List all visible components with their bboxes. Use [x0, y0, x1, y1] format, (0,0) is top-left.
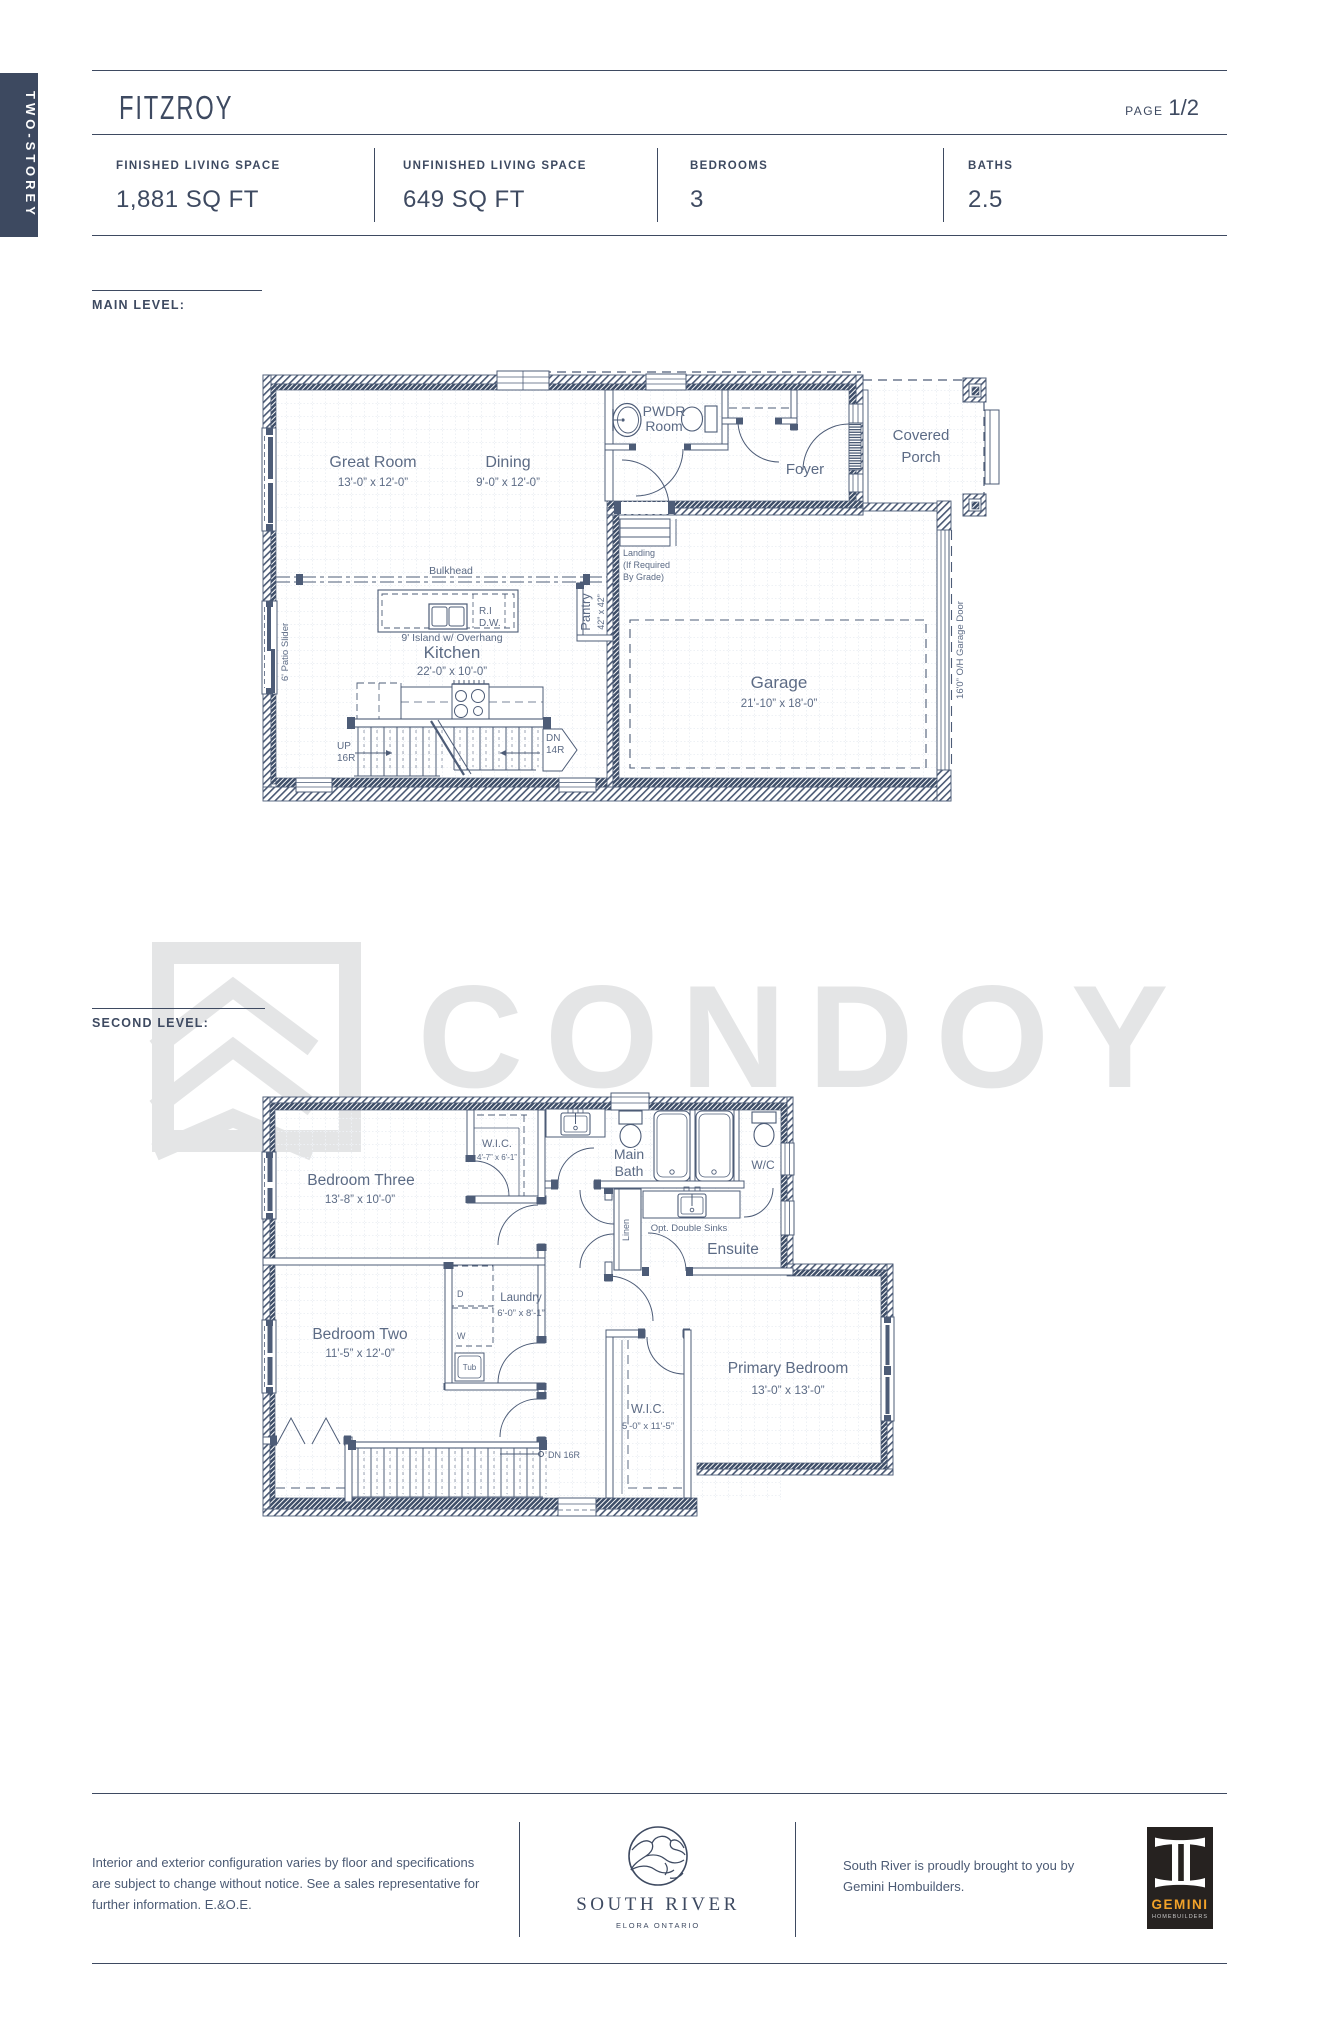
svg-text:14R: 14R: [546, 745, 564, 756]
svg-text:4'-7” x 6'-1”: 4'-7” x 6'-1”: [477, 1153, 517, 1162]
svg-text:9'-0” x 12'-0”: 9'-0” x 12'-0”: [476, 477, 540, 489]
svg-text:Laundry: Laundry: [500, 1292, 542, 1304]
svg-text:13'-0” x 12'-0”: 13'-0” x 12'-0”: [338, 477, 408, 489]
svg-text:Room: Room: [645, 418, 682, 434]
svg-text:DN 16R: DN 16R: [548, 1450, 581, 1460]
svg-text:Porch: Porch: [901, 449, 940, 466]
svg-text:6' Patio Slider: 6' Patio Slider: [280, 623, 291, 681]
svg-text:13'-0” x 13'-0”: 13'-0” x 13'-0”: [751, 1383, 824, 1397]
svg-text:Primary Bedroom: Primary Bedroom: [728, 1360, 849, 1377]
svg-text:D.W.: D.W.: [479, 618, 501, 629]
svg-text:22'-0” x 10'-0”: 22'-0” x 10'-0”: [417, 666, 487, 678]
svg-text:13'-8” x 10'-0”: 13'-8” x 10'-0”: [325, 1194, 395, 1206]
svg-text:Bedroom Three: Bedroom Three: [307, 1172, 414, 1189]
svg-text:Kitchen: Kitchen: [424, 643, 481, 662]
svg-text:Linen: Linen: [621, 1219, 631, 1241]
svg-text:W/C: W/C: [751, 1158, 775, 1172]
svg-text:UP: UP: [337, 741, 351, 752]
svg-text:Bath: Bath: [615, 1163, 644, 1179]
svg-text:11'-5” x 12'-0”: 11'-5” x 12'-0”: [325, 1348, 395, 1360]
svg-text:Dining: Dining: [485, 454, 530, 471]
svg-text:42” x 42”: 42” x 42”: [596, 594, 606, 630]
svg-text:Great Room: Great Room: [329, 454, 416, 471]
svg-text:PWDR: PWDR: [643, 403, 686, 419]
svg-text:D: D: [457, 1289, 464, 1299]
svg-text:21'-10” x 18'-0”: 21'-10” x 18'-0”: [741, 698, 818, 710]
svg-text:Garage: Garage: [751, 673, 808, 692]
svg-text:GEMINI: GEMINI: [1151, 1897, 1208, 1912]
svg-text:R.I: R.I: [479, 606, 492, 617]
svg-text:16'0” O/H Garage Door: 16'0” O/H Garage Door: [955, 601, 966, 699]
svg-text:W: W: [457, 1331, 466, 1341]
svg-text:Pantry: Pantry: [578, 593, 593, 631]
svg-text:W.I.C.: W.I.C.: [482, 1138, 512, 1150]
svg-text:HOMEBUILDERS: HOMEBUILDERS: [1152, 1914, 1208, 1920]
svg-text:(If Required: (If Required: [623, 560, 670, 570]
svg-text:Opt. Double Sinks: Opt. Double Sinks: [651, 1223, 728, 1234]
svg-text:DN: DN: [546, 733, 560, 744]
svg-text:16R: 16R: [337, 753, 355, 764]
svg-text:6'-0” x 8'-1”: 6'-0” x 8'-1”: [497, 1308, 544, 1319]
svg-text:5'-0” x 11'-5”: 5'-0” x 11'-5”: [622, 1421, 674, 1432]
svg-text:Tub: Tub: [463, 1363, 477, 1372]
svg-text:Main: Main: [614, 1146, 644, 1162]
svg-text:Bulkhead: Bulkhead: [429, 565, 473, 577]
svg-text:Bedroom Two: Bedroom Two: [312, 1326, 407, 1343]
svg-text:Covered: Covered: [893, 427, 950, 444]
svg-text:Ensuite: Ensuite: [707, 1241, 759, 1258]
svg-text:By Grade): By Grade): [623, 572, 664, 582]
svg-text:Foyer: Foyer: [786, 461, 824, 478]
svg-text:Landing: Landing: [623, 548, 655, 558]
svg-text:W.I.C.: W.I.C.: [631, 1402, 665, 1416]
